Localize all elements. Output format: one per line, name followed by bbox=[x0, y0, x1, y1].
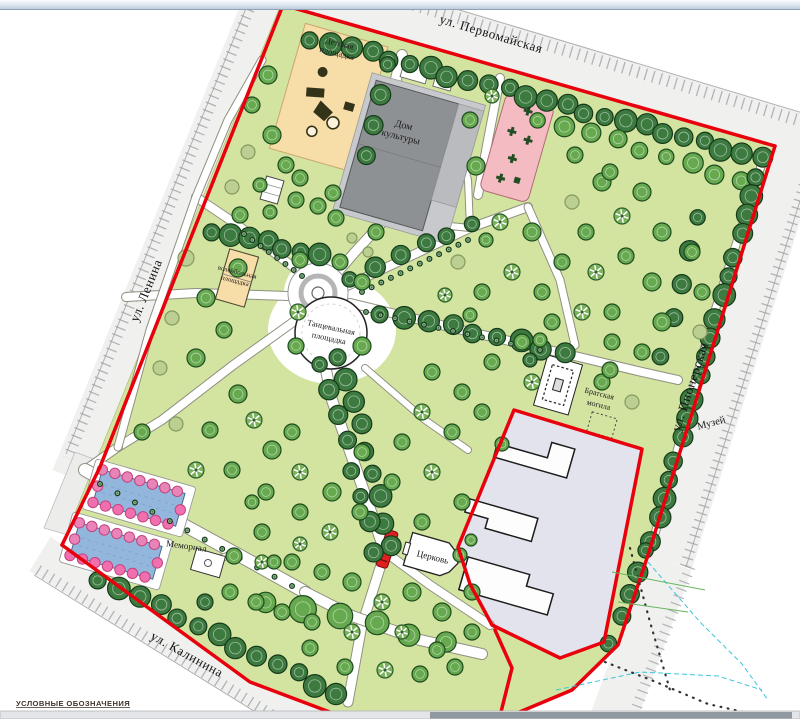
hedge-tree bbox=[436, 66, 457, 87]
hedge-tree bbox=[438, 228, 455, 245]
hedge-tree bbox=[747, 169, 764, 186]
tree bbox=[614, 208, 630, 224]
tree bbox=[322, 524, 338, 540]
hedge-tree bbox=[554, 116, 574, 136]
tree bbox=[202, 422, 218, 438]
tree bbox=[328, 210, 344, 226]
tree bbox=[263, 205, 277, 219]
tree bbox=[267, 555, 281, 569]
shrub-dot bbox=[272, 574, 277, 579]
play-equipment-icon bbox=[306, 87, 325, 97]
tree bbox=[424, 464, 440, 480]
tree bbox=[578, 224, 594, 240]
tree bbox=[429, 642, 445, 658]
hedge-tree bbox=[352, 414, 372, 434]
shrub-dot bbox=[250, 238, 255, 243]
shrub-dot bbox=[422, 322, 427, 327]
hedge-tree bbox=[365, 611, 389, 635]
hedge-tree bbox=[225, 637, 246, 658]
tree bbox=[354, 274, 370, 290]
tree bbox=[197, 594, 213, 610]
tree bbox=[484, 354, 500, 370]
tree bbox=[368, 224, 384, 240]
hedge-tree bbox=[329, 405, 348, 424]
hedge-tree bbox=[582, 123, 601, 142]
shrub-dot bbox=[290, 584, 295, 589]
tree bbox=[588, 264, 604, 280]
shrub-dot bbox=[480, 335, 485, 340]
tree bbox=[524, 374, 540, 390]
shrub-dot bbox=[494, 338, 499, 343]
tree bbox=[226, 548, 242, 564]
hedge-tree bbox=[203, 224, 220, 241]
shrub-dot bbox=[379, 280, 384, 285]
shrub-dot bbox=[258, 244, 263, 249]
hedge-tree bbox=[709, 139, 732, 162]
tree bbox=[225, 180, 239, 194]
tree bbox=[352, 504, 368, 520]
tree bbox=[288, 192, 304, 208]
tree bbox=[284, 554, 300, 570]
shrub-dot bbox=[466, 238, 471, 243]
tree bbox=[625, 395, 639, 409]
tree bbox=[310, 198, 326, 214]
shrub-dot bbox=[408, 266, 413, 271]
tree bbox=[248, 594, 264, 610]
tree bbox=[325, 185, 341, 201]
hedge-tree bbox=[675, 128, 693, 146]
shrub-dot bbox=[417, 261, 422, 266]
tree bbox=[694, 284, 710, 300]
tree bbox=[602, 164, 618, 180]
park-masterplan-viewport[interactable]: ул. Первомайская ул. Ленина ул. Калинина… bbox=[0, 0, 800, 719]
tree bbox=[447, 659, 463, 675]
tree bbox=[343, 573, 361, 591]
tree bbox=[414, 514, 430, 530]
shrub-dot bbox=[300, 274, 305, 279]
hedge-tree bbox=[291, 664, 308, 681]
hedge-tree bbox=[273, 240, 291, 258]
shrub-dot bbox=[220, 547, 225, 552]
tree bbox=[169, 417, 183, 431]
hedge-tree bbox=[574, 104, 592, 122]
tree bbox=[451, 255, 465, 269]
tree bbox=[412, 666, 428, 682]
hedge-tree bbox=[353, 489, 368, 504]
tree bbox=[533, 333, 547, 347]
tree bbox=[485, 89, 499, 103]
tree bbox=[347, 233, 357, 243]
hedge-tree bbox=[308, 243, 331, 266]
hedge-tree bbox=[609, 130, 627, 148]
tree bbox=[292, 252, 308, 268]
hedge-tree bbox=[672, 275, 691, 294]
shrub-dot bbox=[393, 316, 398, 321]
hedge-tree bbox=[247, 646, 267, 666]
tree bbox=[633, 183, 651, 201]
shrub-dot bbox=[364, 310, 369, 315]
tree bbox=[165, 311, 179, 325]
hedge-tree bbox=[364, 543, 383, 562]
hedge-tree bbox=[325, 683, 346, 704]
hedge-tree bbox=[239, 227, 260, 248]
tree bbox=[574, 304, 590, 320]
tree bbox=[523, 223, 541, 241]
tree bbox=[241, 145, 255, 159]
tree bbox=[197, 289, 215, 307]
tree bbox=[462, 112, 478, 128]
hedge-tree bbox=[555, 343, 575, 363]
shrub-dot bbox=[291, 268, 296, 273]
shrub-dot bbox=[150, 509, 155, 514]
hedge-tree bbox=[631, 142, 648, 159]
tree bbox=[292, 464, 308, 480]
tree bbox=[565, 195, 579, 209]
shrub-dot bbox=[283, 262, 288, 267]
tree bbox=[534, 284, 550, 300]
tree bbox=[567, 147, 583, 163]
shrub-dot bbox=[133, 500, 138, 505]
tree bbox=[604, 334, 620, 350]
tree bbox=[479, 233, 493, 247]
tree bbox=[554, 254, 570, 270]
hedge-tree bbox=[615, 109, 638, 132]
tree bbox=[284, 424, 300, 440]
tree bbox=[463, 308, 477, 322]
tree bbox=[187, 349, 205, 367]
tree bbox=[292, 504, 308, 520]
tree bbox=[263, 441, 281, 459]
hedge-tree bbox=[312, 357, 327, 372]
shrub-dot bbox=[437, 252, 442, 257]
hedge-tree bbox=[339, 431, 357, 449]
hedge-tree bbox=[219, 224, 242, 247]
tree bbox=[246, 412, 262, 428]
shrub-dot bbox=[242, 232, 247, 237]
hedge-tree bbox=[319, 379, 339, 399]
tree bbox=[374, 594, 390, 610]
hedge-tree bbox=[301, 32, 318, 49]
tree bbox=[492, 214, 508, 230]
hedge-tree bbox=[652, 348, 669, 365]
tree bbox=[302, 640, 318, 656]
tree bbox=[232, 207, 248, 223]
shrub-dot bbox=[275, 256, 280, 261]
shrub-dot bbox=[98, 482, 103, 487]
hedge-tree bbox=[364, 465, 381, 482]
shrub-dot bbox=[456, 242, 461, 247]
shrub-dot bbox=[509, 341, 514, 346]
tree bbox=[216, 322, 232, 338]
tree bbox=[653, 313, 671, 331]
hedge-tree bbox=[370, 85, 390, 105]
tree bbox=[229, 385, 247, 403]
tree bbox=[684, 244, 700, 260]
tree bbox=[259, 66, 277, 84]
shrub-dot bbox=[369, 285, 374, 290]
tree bbox=[634, 344, 650, 360]
tree bbox=[474, 284, 490, 300]
tree bbox=[293, 537, 307, 551]
tree bbox=[377, 662, 393, 678]
tree bbox=[384, 474, 400, 490]
tree bbox=[602, 362, 618, 378]
tree bbox=[604, 304, 620, 320]
hedge-tree bbox=[659, 149, 674, 164]
tree bbox=[438, 288, 452, 302]
tree bbox=[403, 583, 421, 601]
tree bbox=[222, 584, 238, 600]
hedge-tree bbox=[464, 216, 479, 231]
shrub-dot bbox=[446, 247, 451, 252]
hedge-tree bbox=[365, 257, 385, 277]
hedge-tree bbox=[731, 143, 752, 164]
tree bbox=[504, 264, 520, 280]
tree bbox=[544, 314, 560, 330]
shrub-dot bbox=[185, 528, 190, 533]
tree bbox=[245, 495, 259, 509]
tree bbox=[693, 325, 707, 339]
hedge-tree bbox=[596, 109, 613, 126]
hedge-tree bbox=[303, 675, 326, 698]
tree bbox=[433, 603, 451, 621]
tree bbox=[134, 424, 150, 440]
tree bbox=[263, 126, 281, 144]
hedge-tree bbox=[190, 618, 207, 635]
tree bbox=[465, 534, 477, 546]
hedge-tree bbox=[530, 113, 545, 128]
tree bbox=[153, 361, 167, 375]
top-window-edge bbox=[0, 0, 800, 9]
hedge-tree bbox=[391, 245, 410, 264]
hedge-tree bbox=[458, 71, 478, 91]
tree bbox=[523, 353, 537, 367]
tree bbox=[337, 659, 353, 675]
tree bbox=[424, 364, 440, 380]
shrub-dot bbox=[436, 325, 441, 330]
hedge-tree bbox=[653, 124, 673, 144]
tree bbox=[464, 624, 480, 640]
tree bbox=[474, 404, 490, 420]
tree bbox=[254, 524, 270, 540]
tree bbox=[188, 462, 204, 478]
shrub-dot bbox=[538, 348, 543, 353]
hedge-tree bbox=[417, 234, 435, 252]
tree bbox=[344, 624, 360, 640]
hedge-tree bbox=[536, 90, 557, 111]
hedge-tree bbox=[357, 147, 375, 165]
tree bbox=[292, 170, 308, 186]
shrub-dot bbox=[115, 491, 120, 496]
tree bbox=[274, 604, 290, 620]
tree bbox=[454, 384, 470, 400]
shrub-dot bbox=[378, 313, 383, 318]
tree bbox=[288, 338, 304, 354]
tree bbox=[353, 337, 371, 355]
shrub-dot bbox=[465, 332, 470, 337]
hedge-tree bbox=[705, 165, 724, 184]
tree bbox=[224, 462, 240, 478]
tree bbox=[514, 334, 530, 350]
tree bbox=[395, 625, 409, 639]
tree bbox=[394, 434, 410, 450]
hedge-tree bbox=[690, 210, 705, 225]
shrub-dot bbox=[167, 519, 172, 524]
hedge-tree bbox=[380, 57, 395, 72]
hedge-tree bbox=[364, 116, 383, 135]
tree bbox=[314, 564, 330, 580]
hedge-tree bbox=[401, 56, 418, 73]
hedge-tree bbox=[381, 536, 401, 556]
tree bbox=[354, 444, 370, 460]
tree bbox=[454, 494, 470, 510]
hedge-tree bbox=[269, 655, 287, 673]
hedge-tree bbox=[329, 349, 346, 366]
shrub-dot bbox=[389, 275, 394, 280]
tree bbox=[290, 304, 306, 320]
tree bbox=[258, 484, 274, 500]
shrub-dot bbox=[266, 250, 271, 255]
tree bbox=[653, 223, 671, 241]
hedge-tree bbox=[683, 153, 703, 173]
park-masterplan-drawing: ул. Первомайская ул. Ленина ул. Калинина… bbox=[0, 0, 800, 719]
tree bbox=[363, 247, 373, 257]
horizontal-scrollbar-thumb[interactable] bbox=[430, 712, 792, 719]
hedge-tree bbox=[343, 463, 360, 480]
legend-title[interactable]: УСЛОВНЫЕ ОБОЗНАЧЕНИЯ bbox=[16, 699, 130, 708]
tree bbox=[332, 254, 348, 270]
hedge-tree bbox=[514, 86, 537, 109]
shrub-dot bbox=[427, 257, 432, 262]
tree bbox=[618, 248, 634, 264]
shrub-dot bbox=[451, 329, 456, 334]
shrub-dot bbox=[407, 319, 412, 324]
tree bbox=[323, 483, 341, 501]
tree bbox=[444, 424, 460, 440]
tree bbox=[643, 273, 661, 291]
shrub-dot bbox=[202, 537, 207, 542]
tree bbox=[304, 614, 320, 630]
tree bbox=[414, 404, 430, 420]
tree bbox=[253, 178, 267, 192]
tree bbox=[467, 157, 485, 175]
tree bbox=[278, 157, 294, 173]
shrub-dot bbox=[398, 271, 403, 276]
